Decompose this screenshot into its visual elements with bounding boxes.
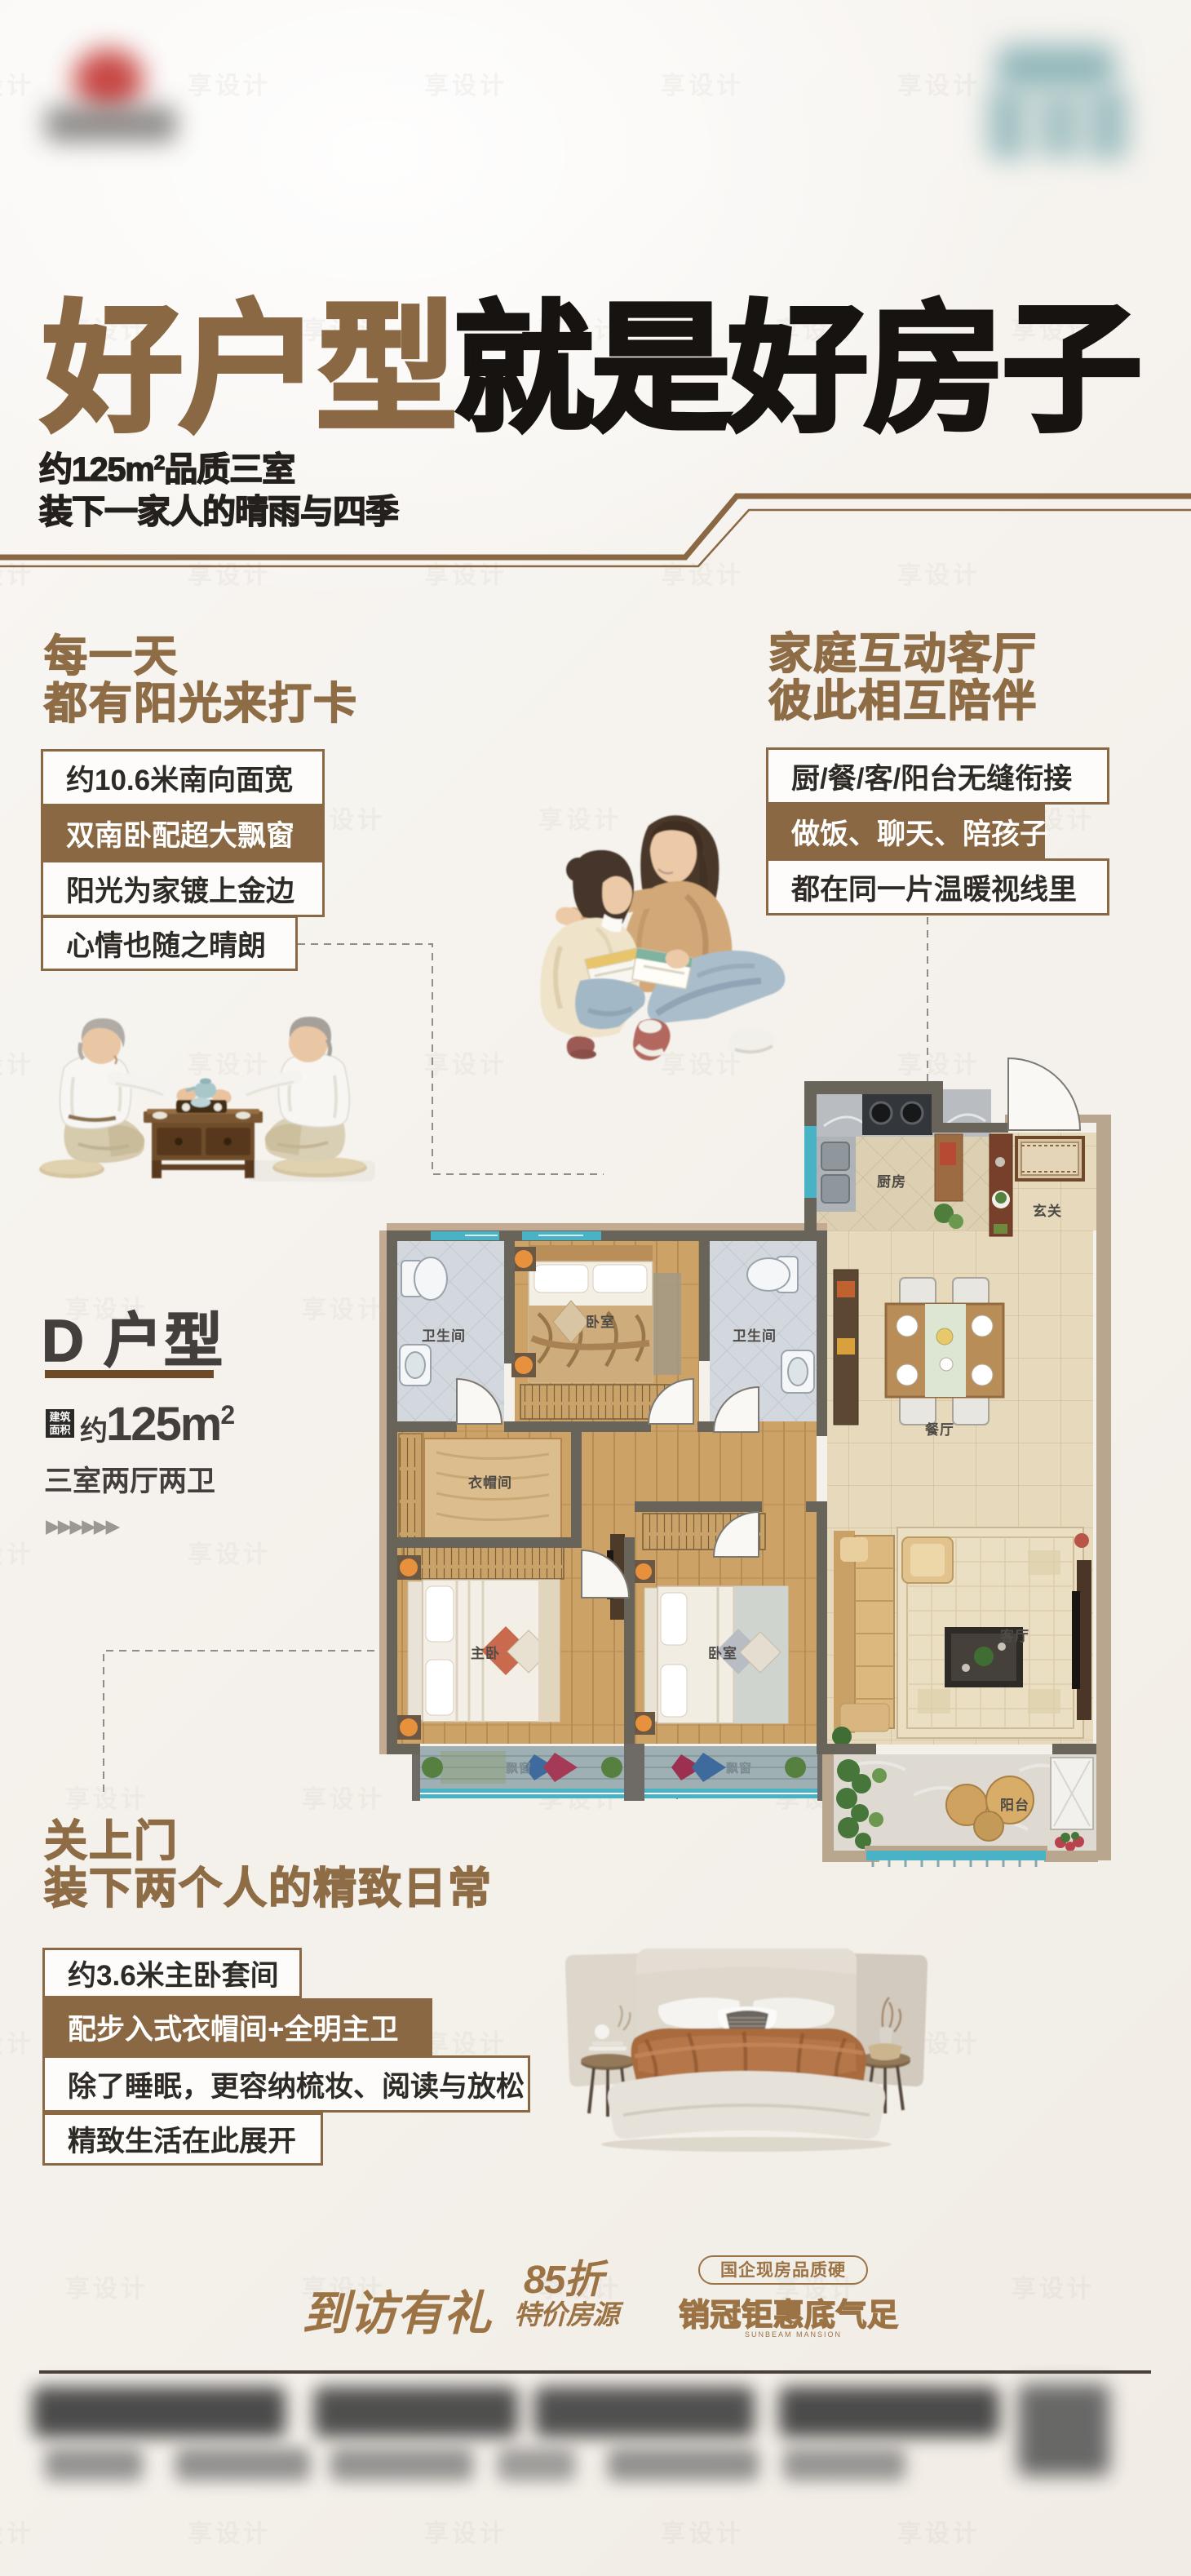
svg-text:卫生间: 卫生间 [733, 1328, 777, 1344]
svg-text:餐厅: 餐厅 [925, 1421, 954, 1438]
svg-text:飘窗: 飘窗 [506, 1761, 532, 1776]
svg-text:阳台: 阳台 [1000, 1797, 1029, 1813]
svg-text:客厅: 客厅 [999, 1628, 1029, 1644]
svg-text:衣帽间: 衣帽间 [468, 1474, 512, 1491]
svg-text:卧室: 卧室 [586, 1314, 615, 1330]
svg-text:飘窗: 飘窗 [726, 1761, 752, 1776]
svg-text:玄关: 玄关 [1033, 1203, 1062, 1219]
svg-text:卧室: 卧室 [708, 1645, 737, 1661]
svg-text:主卧: 主卧 [471, 1645, 500, 1661]
svg-text:厨房: 厨房 [877, 1173, 906, 1190]
svg-text:卫生间: 卫生间 [422, 1328, 466, 1344]
